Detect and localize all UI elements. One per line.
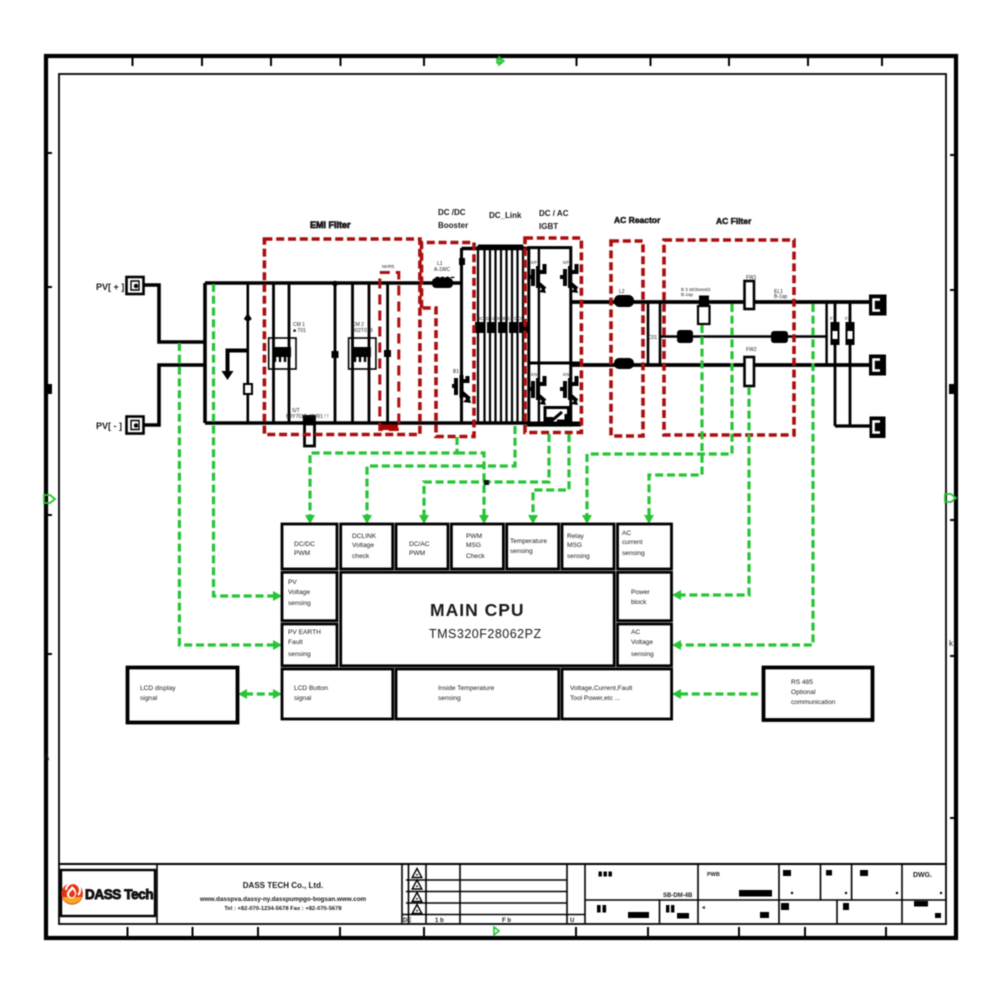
svg-text:DASS TECH Co., Ltd.: DASS TECH Co., Ltd. [243,881,323,890]
svg-text:current: current [622,539,643,546]
svg-text:F b: F b [502,918,511,924]
svg-text:B3Y701B-4BJ91 ! !: B3Y701B-4BJ91 ! ! [286,414,329,420]
svg-text:RS 485: RS 485 [791,679,813,686]
svg-text:Voltage: Voltage [631,639,653,646]
svg-text:DC / AC: DC / AC [539,209,569,218]
svg-text:PV[ + ]: PV[ + ] [96,282,124,292]
svg-text:DC/DC: DC/DC [294,541,315,548]
svg-text:B02T01B: B02T01B [352,328,374,334]
svg-text:sensing: sensing [567,553,590,560]
svg-text:sensing: sensing [288,651,311,658]
svg-text:signal: signal [140,695,158,702]
svg-text:check: check [352,553,370,560]
svg-text:TMS320F28062PZ: TMS320F28062PZ [429,627,542,641]
svg-text:KP2: KP2 [563,260,572,265]
svg-text:Optional: Optional [791,689,816,696]
svg-text:FW2: FW2 [746,347,757,353]
svg-text:IGBT: IGBT [539,222,558,231]
svg-text:U: U [570,918,574,924]
svg-text:sensing: sensing [438,695,461,702]
svg-text:sensing: sensing [631,651,654,658]
svg-text:A: A [44,753,50,762]
svg-text:DWG.: DWG. [913,872,932,879]
svg-text:DE: DE [403,918,411,924]
svg-text:F2: F2 [845,316,851,321]
svg-text:NHR5: NHR5 [382,264,395,269]
svg-text:block: block [631,599,647,606]
svg-text:F1: F1 [830,316,836,321]
svg-text:AC Filter: AC Filter [716,216,752,226]
svg-text:SB-DM-4B: SB-DM-4B [663,893,693,899]
svg-text:LCD display: LCD display [140,685,176,692]
svg-text:DC /DC: DC /DC [438,208,466,217]
svg-text:KP1: KP1 [531,260,540,265]
svg-text:C01: C01 [648,335,657,341]
svg-text:www.dasspva.dassy-ny.dasspumpg: www.dasspva.dassy-ny.dasspumpgo-bogsan.w… [199,896,367,903]
svg-text:Inside Temperature: Inside Temperature [438,685,495,692]
svg-text:◂: ◂ [701,905,706,911]
svg-text:■ T01: ■ T01 [293,328,306,334]
svg-text:MAIN CPU: MAIN CPU [430,600,525,620]
svg-text:Relay: Relay [567,533,585,540]
svg-text:sensing: sensing [288,600,311,607]
svg-text:PV: PV [288,579,297,586]
svg-text:EMI Filter: EMI Filter [310,220,351,230]
svg-text:PV[ - ]: PV[ - ] [96,421,122,431]
svg-text:PWB: PWB [707,872,720,878]
svg-text:Booster: Booster [438,221,468,230]
svg-text:B-1ap: B-1ap [681,292,694,297]
svg-text:Voltage: Voltage [288,589,310,596]
svg-text:signal: signal [294,695,312,702]
svg-text:KN2: KN2 [563,372,572,377]
svg-text:AC: AC [622,530,631,537]
svg-text:MSG: MSG [567,542,582,549]
svg-text:Voltage,Current,Fault: Voltage,Current,Fault [570,685,632,692]
svg-text:L2: L2 [619,289,625,295]
svg-text:DC/AC: DC/AC [409,541,430,548]
svg-text:LCD Button: LCD Button [294,685,328,692]
svg-text:sensing: sensing [510,548,533,555]
svg-text:Tel : +82-070-1234-5678 Fax :: Tel : +82-070-1234-5678 Fax : +82-070-56… [224,906,342,912]
svg-text:1 b: 1 b [435,918,444,924]
svg-text:sensing: sensing [622,550,645,557]
svg-text:PWM: PWM [294,550,310,557]
svg-text:Fault: Fault [288,639,303,646]
svg-text:DC_Link: DC_Link [489,211,522,220]
svg-text:k: k [949,639,954,648]
svg-text:DCLINK: DCLINK [352,533,377,540]
svg-text:Power: Power [631,589,650,596]
svg-text:B-1ap: B-1ap [774,294,788,300]
svg-text:MSG: MSG [466,542,481,549]
svg-text:DASS Tech: DASS Tech [85,887,153,902]
svg-text:AC Reactor: AC Reactor [614,215,661,225]
svg-text:communication: communication [791,699,836,706]
svg-text:1 4 B: 1 4 B [355,351,367,357]
svg-text:KN1: KN1 [531,372,540,377]
svg-text:Temperature: Temperature [510,538,547,545]
svg-text:B1: B1 [453,369,459,375]
svg-text:DC1DC2DC3DC4 DC5: DC1DC2DC3DC4 DC5 [477,316,524,321]
svg-text:PWM: PWM [466,533,482,540]
svg-text:PV EARTH: PV EARTH [288,629,321,636]
svg-text:AC: AC [631,629,640,636]
svg-text:PWM: PWM [409,550,425,557]
svg-text:Voltage: Voltage [352,542,374,549]
svg-text:A-1WC: A-1WC [434,267,451,273]
svg-text:Tool Power,etc ...: Tool Power,etc ... [570,695,620,702]
svg-text:Check: Check [466,553,485,560]
